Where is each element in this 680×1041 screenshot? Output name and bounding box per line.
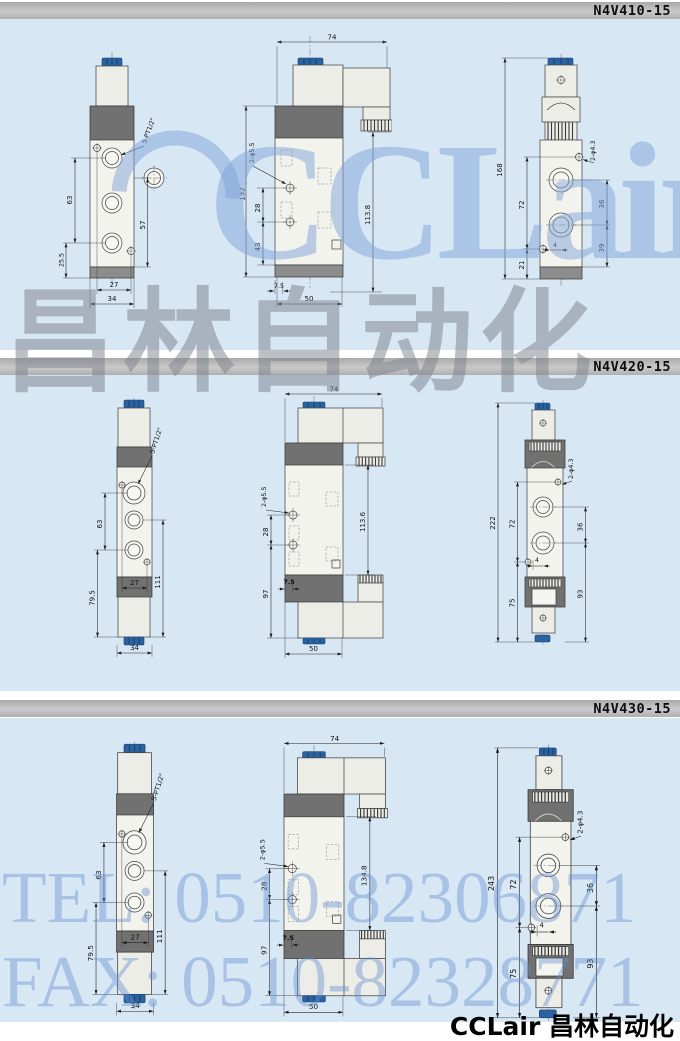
dim-label: 74 xyxy=(330,386,339,394)
end-view-drawing: 168 72 21 2-φ4.3 36 39 4 xyxy=(488,52,618,292)
dim-label: 74 xyxy=(330,734,340,743)
dim-label: 39 xyxy=(598,244,606,253)
dim-label: 4 xyxy=(535,557,539,564)
dim-label: 72 xyxy=(509,880,518,890)
dim-label: 93 xyxy=(586,959,595,969)
dim-label: 36 xyxy=(586,883,595,893)
dim-label: 50 xyxy=(309,1002,319,1011)
dim-label: 243 xyxy=(487,876,496,891)
dim-label: 4 xyxy=(553,242,557,249)
dim-label: 34 xyxy=(130,1001,140,1010)
valve-outline xyxy=(528,745,573,1023)
dim-label: 93 xyxy=(577,590,585,599)
dim-label: 28 xyxy=(262,528,270,537)
model-number-label: N4V410-15 xyxy=(593,3,671,19)
dim-label: 72 xyxy=(518,201,526,210)
model-header-bar-2: N4V420-15 xyxy=(0,358,680,375)
datasheet-page: N4V410-15 xyxy=(0,0,680,1041)
dim-label: 63 xyxy=(96,520,104,529)
dim-label: 132 xyxy=(240,187,247,200)
dim-label: 79.5 xyxy=(89,590,97,606)
dim-label: 27 xyxy=(130,579,139,587)
dim-label: 63 xyxy=(94,870,103,880)
front-view-drawing: 63 79.5 27 111 34 5-PT1/2" xyxy=(88,396,188,666)
side-view-drawing: 74 2-φ5.5 28 97 7.5 134.8 xyxy=(254,733,394,1033)
port-size-label: 5-PT1/2" xyxy=(141,117,157,145)
dim-label: 43 xyxy=(254,243,262,252)
dim-label: 75 xyxy=(509,599,517,608)
dim-label: 36 xyxy=(598,199,606,208)
front-view-drawing: 63 79.5 27 111 34 5-PT1/2" xyxy=(86,740,192,1025)
hole-size-label: 2-φ4.3 xyxy=(590,141,597,161)
side-view-drawing: 74 132 2-φ5.5 28 43 113.8 7.5 xyxy=(240,32,392,317)
dim-label: 21 xyxy=(518,261,526,270)
dim-label: 75 xyxy=(509,969,518,979)
dim-label: 27 xyxy=(110,281,119,289)
hole-size-label: 2-φ5.5 xyxy=(258,839,266,860)
dim-label: 28 xyxy=(254,204,262,213)
end-view-drawing: 243 72 75 2-φ4.3 36 93 4 xyxy=(484,740,608,1028)
dim-label: 36 xyxy=(577,522,585,531)
dim-label: 74 xyxy=(328,34,337,42)
dim-label: 34 xyxy=(130,644,139,652)
port-size-label: 5-PT1/2" xyxy=(149,427,164,455)
section-n4v410-15: 63 25.5 57 27 34 5-PT1/2" xyxy=(0,19,680,350)
port-size-label: 5-PT1/2" xyxy=(150,772,166,801)
dim-label: 111 xyxy=(155,929,164,943)
front-view-drawing: 63 25.5 57 27 34 5-PT1/2" xyxy=(58,50,178,315)
hole-size-label: 2-φ4.3 xyxy=(568,459,575,479)
dim-label: 113.6 xyxy=(359,511,367,532)
hole-size-label: 2-φ5.5 xyxy=(249,143,256,163)
model-header-bar-1: N4V410-15 xyxy=(0,2,680,19)
dim-label: 50 xyxy=(305,295,314,303)
model-header-bar-3: N4V430-15 xyxy=(0,700,680,717)
end-view-drawing: 222 72 75 2-φ4.3 36 93 4 xyxy=(486,396,596,651)
dim-label: 34 xyxy=(108,295,117,303)
dim-label: 79.5 xyxy=(86,945,95,962)
model-number-label: N4V420-15 xyxy=(593,359,671,375)
dim-label: 111 xyxy=(154,575,162,588)
model-number-label: N4V430-15 xyxy=(593,701,671,717)
valve-outline xyxy=(284,745,387,1005)
dim-label: 4 xyxy=(539,920,544,929)
dim-label: 28 xyxy=(259,881,268,891)
dim-label: 134.8 xyxy=(360,865,369,886)
dim-label: 222 xyxy=(489,516,497,529)
section-n4v420-15: 63 79.5 27 111 34 5-PT1/2" xyxy=(0,375,680,691)
dim-label: 27 xyxy=(130,932,140,941)
hole-size-label: 2-φ5.5 xyxy=(261,487,268,507)
section-n4v430-15: 63 79.5 27 111 34 5-PT1/2" xyxy=(0,718,680,1022)
footer-brand: CCLair 昌林自动化 xyxy=(450,1007,674,1041)
side-view-drawing: 74 2-φ5.5 28 97 7.5 113.6 xyxy=(256,384,391,674)
valve-outline xyxy=(525,400,565,646)
dim-label: 168 xyxy=(496,163,504,176)
hole-size-label: 2-φ4.3 xyxy=(575,811,584,834)
dim-label: 50 xyxy=(309,645,318,653)
dim-label: 25.5 xyxy=(59,253,66,267)
dim-label: 57 xyxy=(139,221,147,230)
dim-label: 113.8 xyxy=(364,205,372,225)
dim-label: 97 xyxy=(259,946,268,955)
dim-label: 63 xyxy=(66,196,74,205)
dim-label: 72 xyxy=(509,520,517,529)
dim-label: 97 xyxy=(262,590,270,599)
valve-outline xyxy=(285,396,385,647)
valve-outline xyxy=(275,36,392,288)
